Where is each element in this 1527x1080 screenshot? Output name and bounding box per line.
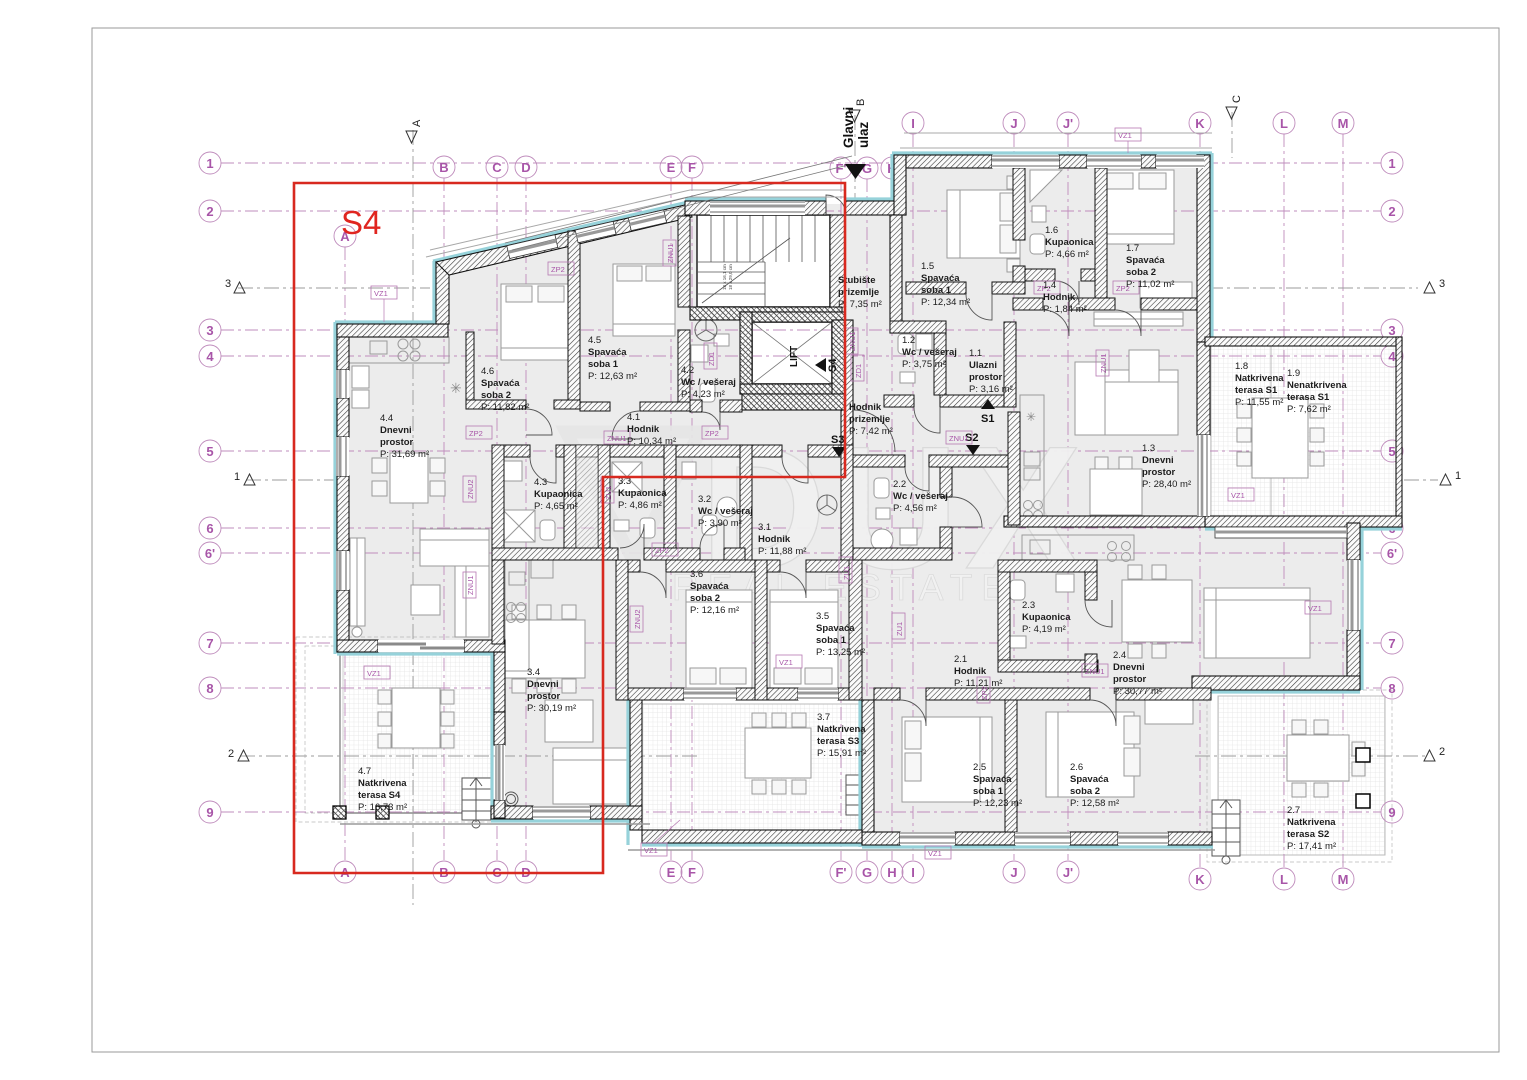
- svg-text:ZP2: ZP2: [705, 429, 719, 438]
- svg-text:Spavaća: Spavaća: [1070, 774, 1109, 785]
- svg-text:D: D: [521, 160, 530, 175]
- svg-text:P: 11,88 m²: P: 11,88 m²: [758, 546, 806, 557]
- svg-text:K: K: [1195, 116, 1205, 131]
- svg-text:G: G: [862, 865, 872, 880]
- svg-text:7: 7: [206, 636, 213, 651]
- svg-text:3: 3: [206, 323, 213, 338]
- svg-text:✳: ✳: [450, 380, 462, 396]
- svg-text:G: G: [862, 161, 872, 176]
- svg-text:2.7: 2.7: [1287, 805, 1300, 816]
- svg-text:8: 8: [206, 681, 213, 696]
- svg-text:F': F': [835, 865, 846, 880]
- svg-text:P: 11,02 m²: P: 11,02 m²: [1126, 279, 1174, 290]
- svg-text:prostor: prostor: [380, 437, 414, 448]
- svg-text:Spavaća: Spavaća: [690, 581, 729, 592]
- svg-text:J: J: [1010, 865, 1017, 880]
- svg-text:Dnevni: Dnevni: [1142, 455, 1174, 466]
- svg-text:P: 12,63 m²: P: 12,63 m²: [588, 371, 637, 382]
- svg-text:2: 2: [228, 748, 234, 760]
- svg-text:P: 7,62 m²: P: 7,62 m²: [1287, 404, 1331, 415]
- svg-text:prostor: prostor: [1113, 674, 1147, 685]
- svg-text:soba 2: soba 2: [481, 390, 511, 401]
- svg-text:VZ1: VZ1: [374, 289, 388, 298]
- svg-text:Dnevni: Dnevni: [1113, 662, 1145, 673]
- svg-text:✳: ✳: [1026, 410, 1036, 424]
- svg-text:9: 9: [1388, 805, 1395, 820]
- svg-text:ZU1: ZU1: [604, 486, 613, 500]
- svg-text:Hodnik: Hodnik: [954, 666, 987, 677]
- svg-text:Hodnik: Hodnik: [758, 534, 791, 545]
- svg-text:4.1: 4.1: [627, 412, 640, 423]
- svg-text:Wc / vešeraj: Wc / vešeraj: [902, 347, 957, 358]
- svg-text:P: 7,42 m²: P: 7,42 m²: [849, 426, 893, 437]
- svg-text:P: 4,66 m²: P: 4,66 m²: [1045, 249, 1089, 260]
- svg-text:Hodnik: Hodnik: [1043, 292, 1076, 303]
- svg-text:3: 3: [225, 278, 231, 290]
- svg-text:4.6: 4.6: [481, 366, 494, 377]
- svg-text:ZNU2: ZNU2: [466, 479, 475, 499]
- svg-text:soba 2: soba 2: [690, 593, 720, 604]
- svg-text:1: 1: [1388, 156, 1395, 171]
- svg-text:1.7: 1.7: [1126, 243, 1139, 254]
- svg-text:Wc / vešeraj: Wc / vešeraj: [698, 506, 753, 517]
- svg-text:4.7: 4.7: [358, 766, 371, 777]
- svg-text:B: B: [855, 99, 867, 106]
- svg-text:Natkrivena: Natkrivena: [817, 724, 866, 735]
- svg-text:terasa S4: terasa S4: [358, 790, 401, 801]
- svg-text:soba 2: soba 2: [1126, 267, 1156, 278]
- svg-text:VZ1: VZ1: [367, 669, 381, 678]
- svg-text:P: 4,23 m²: P: 4,23 m²: [681, 389, 725, 400]
- svg-text:Hodnik: Hodnik: [627, 424, 660, 435]
- svg-text:J': J': [1063, 865, 1073, 880]
- svg-text:2.6: 2.6: [1070, 762, 1083, 773]
- svg-text:ZNU1: ZNU1: [607, 434, 627, 443]
- svg-text:4: 4: [1388, 349, 1396, 364]
- svg-text:M: M: [1338, 872, 1349, 887]
- svg-text:terasa S2: terasa S2: [1287, 829, 1329, 840]
- svg-text:1.6: 1.6: [1045, 225, 1058, 236]
- svg-text:VZ1: VZ1: [928, 849, 942, 858]
- svg-text:P: 11,21 m²: P: 11,21 m²: [954, 678, 1002, 689]
- svg-text:3.1: 3.1: [758, 522, 771, 533]
- svg-text:S4: S4: [341, 204, 381, 241]
- svg-text:E: E: [667, 865, 676, 880]
- svg-text:ZNU1: ZNU1: [466, 575, 475, 595]
- svg-text:2.2: 2.2: [893, 479, 906, 490]
- svg-text:L: L: [1280, 872, 1288, 887]
- svg-text:LIFT: LIFT: [789, 346, 800, 367]
- svg-text:P: 4,19 m²: P: 4,19 m²: [1022, 624, 1066, 635]
- svg-text:Spavaća: Spavaća: [973, 774, 1012, 785]
- svg-text:ZD1: ZD1: [854, 364, 863, 378]
- svg-text:2: 2: [206, 204, 213, 219]
- svg-text:ZP2: ZP2: [551, 265, 565, 274]
- svg-text:A: A: [411, 119, 423, 127]
- svg-text:Kupaonica: Kupaonica: [1022, 612, 1071, 623]
- svg-text:Spavaća: Spavaća: [816, 623, 855, 634]
- svg-text:3.6: 3.6: [690, 569, 703, 580]
- svg-text:P: 4,56 m²: P: 4,56 m²: [893, 503, 937, 514]
- svg-text:L: L: [1280, 116, 1288, 131]
- svg-text:M: M: [1338, 116, 1349, 131]
- svg-text:5: 5: [206, 444, 213, 459]
- svg-text:7: 7: [1388, 636, 1395, 651]
- svg-text:P: 4,86 m²: P: 4,86 m²: [618, 500, 662, 511]
- svg-text:K: K: [1195, 872, 1205, 887]
- svg-text:ZU1: ZU1: [895, 622, 904, 636]
- svg-text:VZ1: VZ1: [644, 846, 658, 855]
- svg-text:2.3: 2.3: [1022, 600, 1035, 611]
- svg-text:P: 28,40 m²: P: 28,40 m²: [1142, 479, 1191, 490]
- svg-text:2.5: 2.5: [973, 762, 986, 773]
- svg-text:prostor: prostor: [527, 691, 561, 702]
- svg-text:S3: S3: [831, 434, 844, 446]
- svg-text:6': 6': [205, 546, 215, 561]
- svg-text:I: I: [911, 116, 915, 131]
- svg-text:Spavaća: Spavaća: [481, 378, 520, 389]
- svg-text:VZ1: VZ1: [1231, 491, 1245, 500]
- svg-text:P: 4,65 m²: P: 4,65 m²: [534, 501, 578, 512]
- svg-text:6: 6: [206, 521, 213, 536]
- svg-text:VZ1: VZ1: [779, 658, 793, 667]
- svg-text:ZP2: ZP2: [469, 429, 483, 438]
- svg-text:P: 12,34 m²: P: 12,34 m²: [921, 297, 970, 308]
- svg-text:P: 1,84 m²: P: 1,84 m²: [1043, 304, 1087, 315]
- svg-text:1.9: 1.9: [1287, 368, 1300, 379]
- svg-text:soba 2: soba 2: [1070, 786, 1100, 797]
- svg-text:P: 11,55 m²: P: 11,55 m²: [1235, 397, 1283, 408]
- svg-text:Ulazni: Ulazni: [969, 360, 997, 371]
- svg-text:P: 15,91 m²: P: 15,91 m²: [817, 748, 866, 759]
- svg-text:2: 2: [1439, 746, 1445, 758]
- svg-text:P: 12,23 m²: P: 12,23 m²: [973, 798, 1022, 809]
- svg-text:Spavaća: Spavaća: [921, 273, 960, 284]
- svg-text:1.8: 1.8: [1235, 361, 1248, 372]
- svg-text:VZ1: VZ1: [1308, 604, 1322, 613]
- svg-text:F: F: [688, 160, 696, 175]
- svg-text:ZNU1: ZNU1: [1099, 353, 1108, 373]
- svg-text:1.5: 1.5: [921, 261, 934, 272]
- svg-text:18 x 16,1 cm: 18 x 16,1 cm: [722, 264, 727, 290]
- svg-text:Wc / vešeraj: Wc / vešeraj: [893, 491, 948, 502]
- svg-text:3: 3: [1388, 323, 1395, 338]
- svg-text:soba 1: soba 1: [588, 359, 619, 370]
- svg-text:18 x 29,0 cm: 18 x 29,0 cm: [728, 264, 733, 290]
- svg-text:soba 1: soba 1: [816, 635, 847, 646]
- svg-text:P: 17,41 m²: P: 17,41 m²: [1287, 841, 1336, 852]
- svg-text:P: 12,58 m²: P: 12,58 m²: [1070, 798, 1119, 809]
- svg-text:1.4: 1.4: [1043, 280, 1056, 291]
- svg-text:2.1: 2.1: [954, 654, 967, 665]
- svg-text:2.4: 2.4: [1113, 650, 1126, 661]
- svg-text:terasa S1: terasa S1: [1287, 392, 1330, 403]
- svg-text:9: 9: [206, 805, 213, 820]
- svg-text:3.4: 3.4: [527, 667, 540, 678]
- svg-text:J: J: [1010, 116, 1017, 131]
- svg-text:P: 10,34 m²: P: 10,34 m²: [627, 436, 676, 447]
- svg-text:B: B: [439, 160, 448, 175]
- svg-text:I: I: [911, 865, 915, 880]
- svg-text:H: H: [887, 865, 896, 880]
- svg-text:P: 11,82 m²: P: 11,82 m²: [481, 402, 529, 413]
- svg-text:C: C: [492, 160, 502, 175]
- svg-text:terasa S1: terasa S1: [1235, 385, 1278, 396]
- svg-text:prostor: prostor: [1142, 467, 1176, 478]
- svg-text:3.2: 3.2: [698, 494, 711, 505]
- svg-text:F': F': [835, 161, 846, 176]
- svg-text:prizemlje: prizemlje: [849, 414, 890, 425]
- svg-text:3: 3: [1439, 278, 1445, 290]
- svg-text:6': 6': [1387, 546, 1397, 561]
- svg-text:Spavaća: Spavaća: [588, 347, 627, 358]
- svg-text:ZNU1: ZNU1: [848, 331, 857, 351]
- svg-text:2: 2: [1388, 204, 1395, 219]
- svg-text:5: 5: [1388, 444, 1395, 459]
- svg-text:8: 8: [1388, 681, 1395, 696]
- svg-text:4.5: 4.5: [588, 335, 601, 346]
- svg-text:4.4: 4.4: [380, 413, 393, 424]
- svg-text:VZ1: VZ1: [1118, 131, 1132, 140]
- svg-text:S4: S4: [827, 358, 839, 372]
- svg-text:Dnevni: Dnevni: [380, 425, 412, 436]
- svg-text:4.2: 4.2: [681, 365, 694, 376]
- svg-text:Dnevni: Dnevni: [527, 679, 559, 690]
- svg-text:S1: S1: [981, 413, 994, 425]
- svg-text:ZNU1: ZNU1: [949, 434, 969, 443]
- svg-text:soba 1: soba 1: [921, 285, 952, 296]
- svg-text:Glavni: Glavni: [841, 107, 856, 148]
- svg-text:1.2: 1.2: [902, 335, 915, 346]
- svg-text:ZU1: ZU1: [842, 566, 851, 580]
- svg-text:P: 3,16 m²: P: 3,16 m²: [969, 384, 1013, 395]
- svg-text:prostor: prostor: [969, 372, 1003, 383]
- svg-text:4: 4: [206, 349, 214, 364]
- svg-text:Wc / vešeraj: Wc / vešeraj: [681, 377, 736, 388]
- svg-text:ZD1: ZD1: [707, 352, 716, 366]
- svg-text:P: 30,77 m²: P: 30,77 m²: [1113, 686, 1162, 697]
- svg-text:soba 1: soba 1: [973, 786, 1004, 797]
- svg-text:ZNU2: ZNU2: [633, 609, 642, 629]
- svg-text:P: 30,19 m²: P: 30,19 m²: [527, 703, 576, 714]
- svg-text:P: 3,90 m²: P: 3,90 m²: [698, 518, 742, 529]
- svg-text:Natkrivena: Natkrivena: [358, 778, 407, 789]
- svg-text:P: 16,73 m²: P: 16,73 m²: [358, 802, 407, 813]
- svg-text:P: 13,25 m²: P: 13,25 m²: [816, 647, 865, 658]
- svg-text:Natkrivena: Natkrivena: [1235, 373, 1284, 384]
- svg-text:J': J': [1063, 116, 1073, 131]
- svg-text:Nenatkrivena: Nenatkrivena: [1287, 380, 1347, 391]
- svg-text:F: F: [688, 865, 696, 880]
- svg-text:P: 31,69 m²: P: 31,69 m²: [380, 449, 429, 460]
- svg-text:Kupaonica: Kupaonica: [618, 488, 667, 499]
- svg-text:1.3: 1.3: [1142, 443, 1155, 454]
- svg-text:Stubište: Stubište: [838, 275, 875, 286]
- svg-text:C: C: [1231, 95, 1243, 103]
- svg-text:Spavaća: Spavaća: [1126, 255, 1165, 266]
- svg-text:3.5: 3.5: [816, 611, 829, 622]
- svg-text:Natkrivena: Natkrivena: [1287, 817, 1336, 828]
- svg-text:P: 3,75 m²: P: 3,75 m²: [902, 359, 946, 370]
- svg-text:1.1: 1.1: [969, 348, 982, 359]
- svg-text:1: 1: [1455, 470, 1461, 482]
- svg-text:ZNU1: ZNU1: [1085, 667, 1105, 676]
- svg-text:1: 1: [234, 471, 240, 483]
- svg-text:ZNU1: ZNU1: [666, 243, 675, 263]
- svg-text:1: 1: [206, 156, 213, 171]
- svg-text:ZP2: ZP2: [655, 546, 669, 555]
- svg-text:E: E: [667, 160, 676, 175]
- svg-text:ulaz: ulaz: [856, 121, 871, 148]
- svg-text:terasa S3: terasa S3: [817, 736, 859, 747]
- svg-text:Kupaonica: Kupaonica: [534, 489, 583, 500]
- svg-text:P: 12,16 m²: P: 12,16 m²: [690, 605, 739, 616]
- svg-text:3.7: 3.7: [817, 712, 830, 723]
- svg-text:4.3: 4.3: [534, 477, 547, 488]
- svg-text:Hodnik: Hodnik: [849, 402, 882, 413]
- svg-text:Kupaonica: Kupaonica: [1045, 237, 1094, 248]
